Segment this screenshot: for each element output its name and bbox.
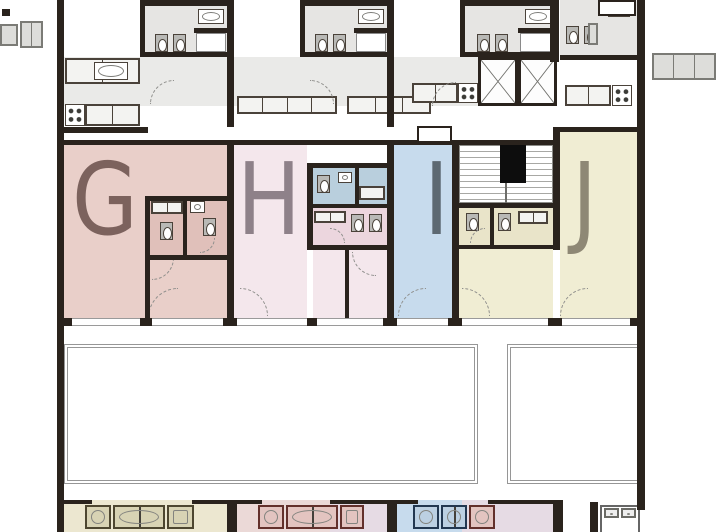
- sink-icon: [338, 172, 352, 183]
- shaft-box: [598, 0, 636, 16]
- wall: [490, 208, 494, 245]
- wall: [460, 0, 465, 57]
- toilet-icon: [317, 175, 330, 193]
- niche-i-top: [417, 126, 452, 143]
- wall: [553, 132, 560, 250]
- sink-icon: [258, 505, 284, 529]
- wall: [488, 500, 563, 504]
- stove-icon: [65, 104, 85, 126]
- sink-icon: [190, 201, 205, 213]
- toilet-icon: [155, 34, 168, 52]
- shower-icon: [167, 505, 194, 529]
- bathroom-pair: [113, 505, 165, 529]
- wall: [330, 500, 418, 504]
- sink-icon: [198, 9, 224, 24]
- toilet-icon: [173, 34, 186, 52]
- counter-topright: [588, 23, 598, 45]
- wall: [452, 140, 459, 318]
- vanity-counter: [314, 211, 346, 223]
- toilet-icon: [495, 34, 508, 52]
- wall: [307, 245, 393, 250]
- wall: [300, 0, 305, 57]
- stove-icon: [612, 85, 632, 106]
- elevator-icon: [518, 57, 557, 106]
- toilet-icon: [466, 213, 479, 231]
- shower-icon: [340, 505, 364, 529]
- outer-wall-right: [637, 0, 645, 510]
- wall: [307, 204, 393, 208]
- toilet-icon: [315, 34, 328, 52]
- bathroom-module-3: [460, 0, 557, 57]
- sink-icon: [469, 505, 495, 529]
- wall: [452, 245, 557, 249]
- unit-label-h: H: [237, 150, 301, 250]
- wall: [553, 500, 563, 532]
- stair-void: [500, 145, 526, 183]
- wall: [448, 318, 462, 326]
- unit-label-g: G: [72, 150, 138, 250]
- kitchen-counter: [565, 85, 611, 106]
- sink-icon: [358, 9, 384, 24]
- wall: [550, 0, 559, 62]
- terrace-right: [507, 344, 645, 484]
- wall: [387, 500, 397, 532]
- elevator-icon: [478, 57, 518, 106]
- wall-unit-top: [58, 140, 557, 145]
- shower-room: [356, 33, 386, 52]
- wall: [140, 318, 152, 326]
- wall: [590, 502, 598, 532]
- wall: [183, 201, 187, 255]
- wall: [227, 140, 234, 318]
- balcony-unit-left: [20, 21, 43, 48]
- shower-tray: [359, 186, 385, 200]
- wall: [548, 318, 562, 326]
- sink-icon: [413, 505, 439, 529]
- toilet-icon: [566, 26, 579, 44]
- toilet-icon: [498, 213, 511, 231]
- stove-icon: [458, 83, 478, 103]
- fixture: [621, 508, 636, 518]
- kitchen-sink-icon: [94, 62, 128, 80]
- balcony-sink-left: [0, 24, 18, 46]
- vanity-counter: [151, 201, 183, 214]
- wall: [560, 55, 637, 60]
- bathroom-module-1: [140, 0, 228, 57]
- kitchen-counter: [85, 104, 140, 126]
- wall: [64, 500, 92, 504]
- wall: [58, 127, 148, 133]
- wall: [452, 203, 560, 208]
- terrace-left: [64, 344, 478, 484]
- toilet-icon: [160, 222, 173, 240]
- sink-icon: [525, 9, 551, 24]
- wall: [307, 318, 317, 326]
- toilet-icon: [203, 218, 216, 236]
- floor-plan-canvas: G H I J: [0, 0, 720, 532]
- shower-room: [196, 33, 226, 52]
- bathroom-pair: [441, 505, 467, 529]
- wall: [355, 168, 359, 204]
- vanity-counter: [518, 211, 548, 224]
- toilet-icon: [333, 34, 346, 52]
- wall: [227, 0, 234, 127]
- wall: [345, 250, 349, 318]
- bathroom-pair: [286, 505, 338, 529]
- bathroom-module-2: [300, 0, 388, 57]
- wall: [387, 0, 394, 127]
- wall: [140, 0, 145, 57]
- toilet-icon: [369, 214, 382, 232]
- wall: [145, 196, 232, 201]
- wall: [383, 318, 397, 326]
- wall: [145, 255, 232, 260]
- wall: [307, 163, 393, 168]
- wall-j-top: [553, 127, 645, 132]
- wall: [227, 500, 237, 532]
- balcony-counter-right: [652, 53, 716, 80]
- outer-wall-left: [57, 0, 64, 532]
- fixture: [604, 508, 619, 518]
- toilet-icon: [351, 214, 364, 232]
- toilet-icon: [477, 34, 490, 52]
- unit-label-i: I: [424, 150, 449, 250]
- wall: [223, 318, 237, 326]
- sink-icon: [85, 505, 111, 529]
- shower-room: [520, 33, 552, 52]
- wall-stub-topleft: [2, 9, 10, 16]
- unit-label-j: J: [572, 150, 597, 250]
